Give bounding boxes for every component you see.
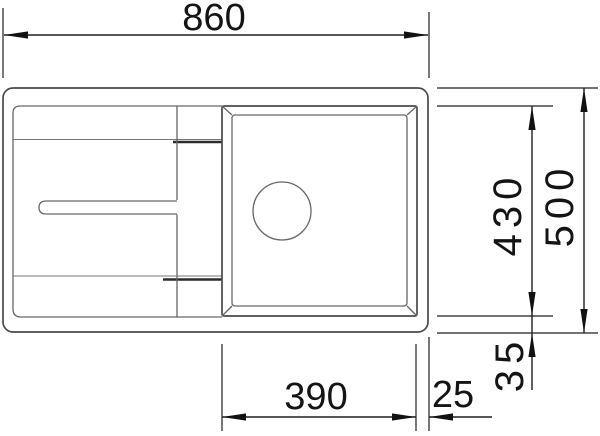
dim-label-25: 25 xyxy=(432,374,474,416)
arrow-430-top xyxy=(528,106,535,130)
bowl-bevel-bottom-left xyxy=(222,306,232,316)
dimension-35: 35 xyxy=(488,316,536,392)
drainboard-slot xyxy=(39,201,177,214)
dimension-430: 430 xyxy=(437,106,553,316)
sink-body xyxy=(3,88,428,332)
dimension-25: 25 xyxy=(429,337,492,431)
arrow-430-bottom xyxy=(528,292,535,316)
dim-label-35: 35 xyxy=(488,336,532,393)
dimension-390: 390 xyxy=(222,344,416,431)
arrow-390-left xyxy=(222,413,246,420)
technical-drawing-canvas: 860 500 430 35 390 25 xyxy=(0,0,600,436)
bowl-bevel-top-right xyxy=(407,106,417,115)
dim-label-500: 500 xyxy=(538,163,582,248)
sink-dimension-drawing: 860 500 430 35 390 25 xyxy=(0,0,600,436)
dim-label-430: 430 xyxy=(486,172,530,257)
arrow-860-right xyxy=(404,31,428,38)
arrow-390-right xyxy=(392,413,416,420)
bowl-bevel-bottom-right xyxy=(407,306,417,316)
arrow-500-top xyxy=(580,88,587,112)
sink-outer-rim xyxy=(3,88,428,332)
dim-label-390: 390 xyxy=(284,376,347,418)
dimension-860: 860 xyxy=(3,0,429,78)
dim-label-860: 860 xyxy=(182,0,245,39)
drain-hole-circle xyxy=(253,182,311,240)
drainboard-panel xyxy=(13,106,222,317)
arrow-500-bottom xyxy=(580,309,587,333)
bowl-bevel-top-left xyxy=(222,106,232,115)
arrow-860-left xyxy=(4,31,28,38)
bowl-inner-edge xyxy=(232,115,407,306)
bowl-outer-edge xyxy=(222,106,417,316)
